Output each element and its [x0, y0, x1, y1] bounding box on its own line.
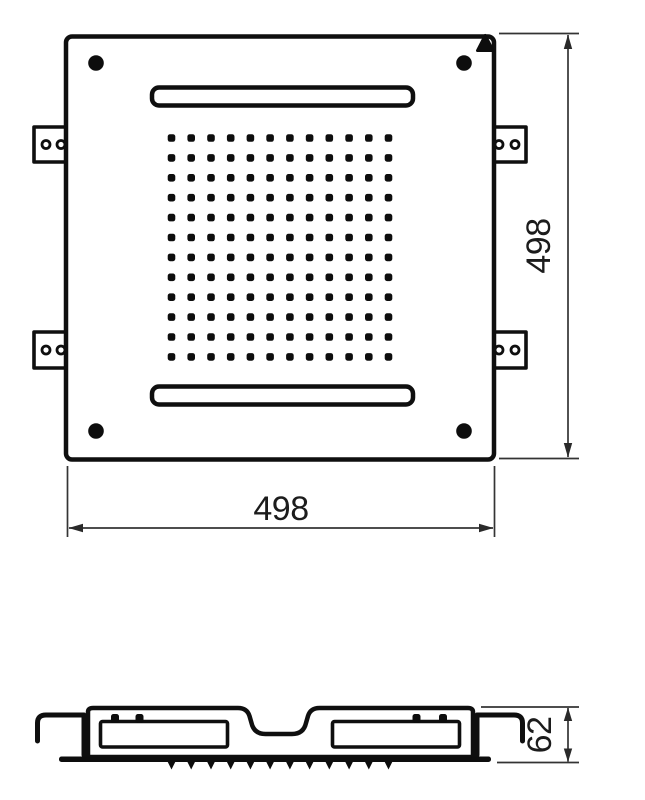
- dimension-height: 498: [499, 34, 579, 459]
- nozzle-hole: [326, 254, 334, 262]
- nozzle-hole: [207, 214, 215, 222]
- nozzle-hole: [207, 194, 215, 202]
- mounting-bracket-top-left: [34, 127, 66, 162]
- nozzle-hole: [385, 313, 393, 321]
- nozzle-hole: [365, 194, 373, 202]
- spray-nozzle-tip: [227, 762, 235, 770]
- nozzle-hole: [266, 194, 274, 202]
- nozzle-hole: [247, 214, 255, 222]
- nozzle-hole: [365, 313, 373, 321]
- nozzle-hole: [266, 254, 274, 262]
- spray-nozzle-tip: [246, 762, 254, 770]
- nozzle-hole: [345, 214, 353, 222]
- nozzle-hole: [365, 254, 373, 262]
- nozzle-hole: [365, 274, 373, 282]
- nozzle-hole: [385, 274, 393, 282]
- nozzle-hole: [286, 274, 294, 282]
- spray-nozzle-tip: [385, 762, 393, 770]
- nozzle-hole: [345, 313, 353, 321]
- shower-head-technical-drawing: 498 498 62: [0, 0, 645, 800]
- nozzle-hole: [168, 274, 176, 282]
- nozzle-hole: [247, 313, 255, 321]
- nozzle-hole: [385, 214, 393, 222]
- nozzle-hole: [247, 194, 255, 202]
- nozzle-hole: [266, 154, 274, 162]
- nozzle-hole: [286, 194, 294, 202]
- bracket-hole: [42, 141, 50, 149]
- nozzle-hole: [247, 333, 255, 341]
- nozzle-hole: [168, 134, 176, 142]
- nozzle-hole: [365, 154, 373, 162]
- nozzle-hole: [168, 293, 176, 301]
- nozzle-hole: [326, 313, 334, 321]
- nozzle-hole: [266, 313, 274, 321]
- arrowhead-right: [479, 524, 494, 532]
- nozzle-hole: [168, 313, 176, 321]
- nozzle-hole: [385, 194, 393, 202]
- nozzle-hole: [207, 174, 215, 182]
- nozzle-hole: [385, 134, 393, 142]
- nozzle-hole: [326, 353, 334, 361]
- nozzle-hole: [266, 333, 274, 341]
- nozzle-hole: [187, 154, 195, 162]
- arrowhead-up: [564, 35, 572, 50]
- nozzle-hole: [326, 174, 334, 182]
- dimension-label-height: 498: [520, 218, 558, 273]
- spray-nozzle-tip: [365, 762, 373, 770]
- nozzle-hole: [266, 174, 274, 182]
- nozzle-hole: [365, 214, 373, 222]
- spray-nozzle-tip: [345, 762, 353, 770]
- arrowhead-up: [564, 708, 572, 722]
- nozzle-hole: [187, 353, 195, 361]
- spray-teeth: [168, 762, 393, 770]
- nozzle-hole: [207, 274, 215, 282]
- nozzle-hole: [365, 134, 373, 142]
- nozzle-hole: [306, 154, 314, 162]
- profile-chamber-left: [101, 722, 228, 748]
- bracket-hole: [511, 141, 519, 149]
- nozzle-hole: [385, 353, 393, 361]
- nozzle-hole: [306, 134, 314, 142]
- spray-nozzle-tip: [187, 762, 195, 770]
- bracket-hole: [42, 346, 50, 354]
- nozzle-hole: [286, 333, 294, 341]
- nozzle-hole: [385, 154, 393, 162]
- nozzle-hole: [286, 254, 294, 262]
- nozzle-hole: [345, 353, 353, 361]
- nozzle-hole: [385, 234, 393, 242]
- nozzle-hole: [266, 353, 274, 361]
- mounting-bracket-bottom-right: [494, 332, 526, 368]
- spray-nozzle-tip: [286, 762, 294, 770]
- nozzle-hole: [286, 134, 294, 142]
- nozzle-hole: [168, 174, 176, 182]
- dimension-label-depth: 62: [521, 717, 559, 754]
- nozzle-hole: [207, 254, 215, 262]
- nozzle-hole: [187, 274, 195, 282]
- nozzle-hole: [227, 274, 235, 282]
- nozzle-hole: [227, 293, 235, 301]
- chamber-nub: [136, 714, 144, 723]
- nozzle-hole: [365, 174, 373, 182]
- nozzle-hole: [286, 313, 294, 321]
- nozzle-hole: [168, 353, 176, 361]
- spray-nozzle-tip: [306, 762, 314, 770]
- nozzle-hole: [247, 174, 255, 182]
- nozzle-hole: [207, 154, 215, 162]
- nozzle-hole: [266, 214, 274, 222]
- nozzle-hole: [227, 313, 235, 321]
- nozzle-hole: [207, 293, 215, 301]
- waterfall-slot-bottom: [152, 387, 413, 405]
- chamber-nub: [439, 714, 447, 723]
- nozzle-hole: [286, 353, 294, 361]
- nozzle-hole: [227, 214, 235, 222]
- nozzle-hole: [345, 134, 353, 142]
- nozzle-hole: [286, 154, 294, 162]
- nozzle-hole: [326, 333, 334, 341]
- arrowhead-left: [69, 524, 84, 532]
- nozzle-hole: [365, 234, 373, 242]
- nozzle-hole: [227, 134, 235, 142]
- nozzle-hole: [345, 174, 353, 182]
- nozzle-hole: [227, 333, 235, 341]
- nozzle-hole: [168, 234, 176, 242]
- nozzle-hole: [306, 333, 314, 341]
- nozzle-hole: [266, 274, 274, 282]
- nozzle-hole: [187, 293, 195, 301]
- nozzle-hole: [345, 234, 353, 242]
- profile-bottom-plate: [59, 757, 491, 763]
- nozzle-hole: [227, 353, 235, 361]
- nozzle-hole: [306, 293, 314, 301]
- nozzle-hole: [266, 134, 274, 142]
- nozzle-hole: [345, 194, 353, 202]
- nozzle-hole: [326, 194, 334, 202]
- ceiling-hook-right: [477, 715, 523, 755]
- nozzle-hole: [247, 154, 255, 162]
- nozzle-hole: [266, 234, 274, 242]
- nozzle-hole: [365, 293, 373, 301]
- nozzle-hole: [286, 293, 294, 301]
- nozzle-hole: [168, 333, 176, 341]
- nozzle-hole: [345, 254, 353, 262]
- corner-screw: [456, 55, 472, 71]
- nozzle-hole: [187, 174, 195, 182]
- nozzle-hole: [306, 254, 314, 262]
- ceiling-hook-left: [38, 715, 85, 755]
- spray-nozzle-tip: [168, 762, 176, 770]
- nozzle-hole: [247, 254, 255, 262]
- nozzle-hole: [168, 194, 176, 202]
- nozzle-hole: [227, 194, 235, 202]
- nozzle-hole: [207, 353, 215, 361]
- mounting-bracket-bottom-left: [34, 332, 66, 368]
- nozzle-hole: [306, 313, 314, 321]
- nozzle-hole: [187, 134, 195, 142]
- nozzle-hole: [385, 293, 393, 301]
- nozzle-hole: [207, 313, 215, 321]
- nozzle-hole: [187, 214, 195, 222]
- nozzle-hole: [385, 174, 393, 182]
- nozzle-hole: [345, 154, 353, 162]
- chamber-nub: [111, 714, 119, 723]
- nozzle-hole: [385, 333, 393, 341]
- nozzle-hole: [247, 234, 255, 242]
- arrowhead-down: [564, 749, 572, 763]
- nozzle-hole: [207, 134, 215, 142]
- nozzle-hole: [326, 234, 334, 242]
- nozzle-hole: [207, 234, 215, 242]
- nozzle-hole: [326, 293, 334, 301]
- nozzle-hole: [345, 274, 353, 282]
- nozzle-hole: [247, 353, 255, 361]
- nozzle-hole: [306, 174, 314, 182]
- nozzle-hole: [227, 234, 235, 242]
- bracket-hole: [511, 346, 519, 354]
- spray-nozzle-tip: [325, 762, 333, 770]
- nozzle-hole: [227, 174, 235, 182]
- nozzle-hole: [187, 333, 195, 341]
- nozzle-hole: [306, 353, 314, 361]
- nozzle-hole: [168, 254, 176, 262]
- nozzle-hole: [345, 333, 353, 341]
- nozzle-hole: [345, 293, 353, 301]
- nozzle-hole: [227, 154, 235, 162]
- nozzle-hole: [247, 293, 255, 301]
- nozzle-hole: [187, 313, 195, 321]
- chamber-nub: [413, 714, 421, 723]
- nozzle-hole: [326, 134, 334, 142]
- nozzle-hole: [247, 274, 255, 282]
- nozzle-hole: [326, 214, 334, 222]
- nozzle-hole: [365, 353, 373, 361]
- dimension-width: 498: [68, 466, 495, 537]
- nozzle-hole: [306, 234, 314, 242]
- arrowhead-down: [564, 443, 572, 458]
- nozzle-hole: [306, 214, 314, 222]
- profile-chamber-right: [333, 722, 460, 748]
- dimension-label-width: 498: [253, 490, 308, 528]
- corner-screw: [88, 55, 104, 71]
- corner-screw: [456, 423, 472, 439]
- nozzle-hole: [168, 214, 176, 222]
- spray-nozzle-tip: [266, 762, 274, 770]
- side-view: [38, 708, 523, 770]
- waterfall-slot-top: [152, 88, 413, 106]
- top-view: [34, 36, 526, 460]
- nozzle-hole: [286, 214, 294, 222]
- technical-drawing-page: 498 498 62: [0, 0, 645, 800]
- nozzle-hole: [286, 174, 294, 182]
- nozzle-hole: [326, 274, 334, 282]
- nozzle-hole: [365, 333, 373, 341]
- nozzle-hole: [168, 154, 176, 162]
- corner-screw: [88, 423, 104, 439]
- mounting-bracket-top-right: [494, 127, 526, 162]
- nozzle-hole: [227, 254, 235, 262]
- nozzle-hole: [247, 134, 255, 142]
- nozzle-hole: [187, 194, 195, 202]
- nozzle-hole: [326, 154, 334, 162]
- spray-nozzle-tip: [207, 762, 215, 770]
- nozzle-hole: [187, 234, 195, 242]
- nozzle-hole: [306, 194, 314, 202]
- nozzle-hole: [306, 274, 314, 282]
- nozzle-hole: [286, 234, 294, 242]
- nozzle-hole: [266, 293, 274, 301]
- nozzle-hole: [207, 333, 215, 341]
- nozzle-hole: [385, 254, 393, 262]
- nozzle-hole: [187, 254, 195, 262]
